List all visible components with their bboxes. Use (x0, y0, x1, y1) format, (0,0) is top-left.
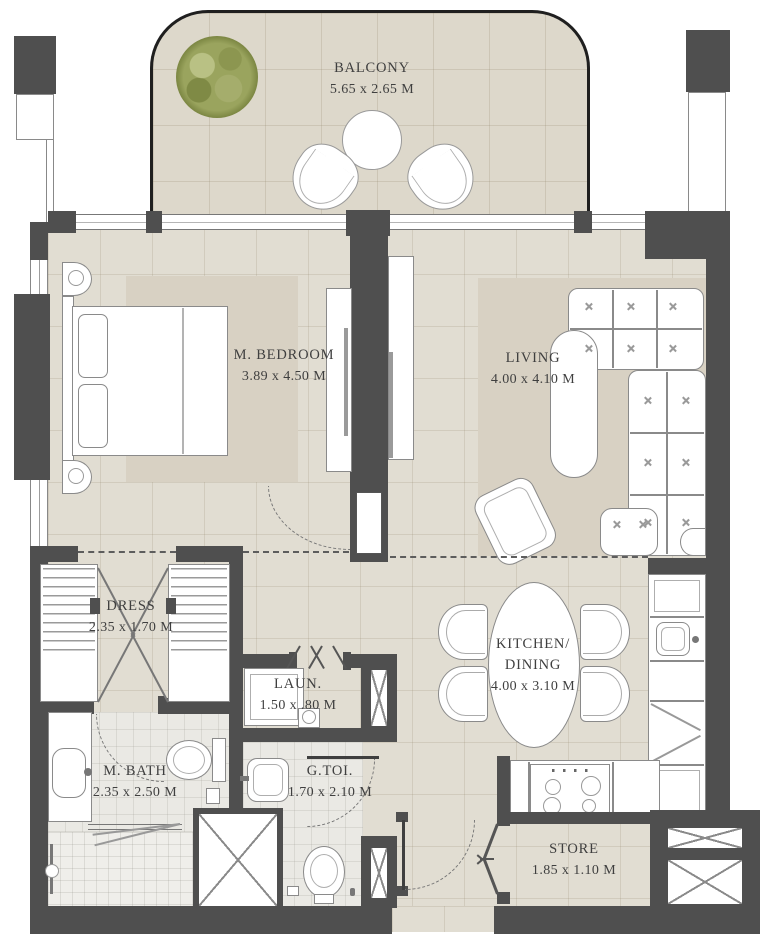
wall-segment (686, 30, 730, 92)
room-label-living: LIVING 4.00 x 4.10 M (433, 348, 633, 390)
burner (545, 779, 561, 795)
door-jamb (497, 892, 510, 904)
room-dims: 3.89 x 4.50 M (184, 366, 384, 387)
wall-segment (645, 211, 730, 259)
room-label-bedroom: M. BEDROOM 3.89 x 4.50 M (184, 345, 384, 387)
wall-segment (497, 756, 510, 818)
window-mullion (48, 211, 76, 233)
sofa-tuft (643, 396, 652, 405)
wall-segment (510, 812, 650, 824)
room-label-kitchen-dining: KITCHEN/ DINING 4.00 x 3.10 M (443, 634, 623, 697)
entry-floor (392, 906, 494, 932)
room-name: LIVING (433, 348, 633, 369)
window-mullion (146, 211, 162, 233)
counter-divider (650, 616, 704, 618)
room-name: M. BATH (45, 761, 225, 782)
wall-segment (494, 906, 760, 934)
wall-segment (30, 222, 48, 260)
side-table (680, 528, 706, 556)
neighbour-wall-lines (46, 140, 54, 222)
room-label-store: STORE 1.85 x 1.10 M (484, 839, 664, 881)
room-name: DINING (443, 655, 623, 676)
neighbour-column (688, 92, 726, 222)
sofa-tuft (612, 520, 621, 529)
wall-segment (14, 36, 56, 94)
bedroom-door-leaf (356, 492, 382, 554)
bedside-lamp (68, 270, 84, 286)
wall-segment (30, 546, 78, 562)
room-dims: 1.50 x .80 M (208, 695, 388, 716)
room-name: STORE (484, 839, 664, 860)
burner (582, 799, 596, 813)
room-label-laundry: LAUN. 1.50 x .80 M (208, 674, 388, 716)
sofa-tuft (626, 302, 635, 311)
pillow (78, 384, 108, 448)
counter-divider (612, 762, 614, 816)
room-name: DRESS (41, 596, 221, 617)
gtoi-toilet-inner (310, 854, 338, 888)
bedside-lamp (68, 468, 84, 484)
neighbour-column (16, 94, 54, 140)
room-dims: 2.35 x 2.50 M (45, 782, 225, 803)
oven (654, 770, 700, 814)
room-name: LAUN. (208, 674, 388, 695)
room-dims: 5.65 x 2.65 M (272, 79, 472, 100)
room-dims: 1.85 x 1.10 M (484, 860, 664, 881)
kitchen-sink-inner (661, 627, 685, 651)
sofa-tuft (681, 396, 690, 405)
pillow (78, 314, 108, 378)
wall-segment (648, 558, 706, 574)
faucet (692, 636, 699, 643)
room-dims: 4.00 x 4.10 M (433, 369, 633, 390)
tree-plant (176, 36, 258, 118)
service-shaft (193, 808, 283, 912)
bedroom-window (30, 260, 48, 294)
counter-divider (650, 660, 704, 662)
room-name: M. BEDROOM (184, 345, 384, 366)
bedroom-window (30, 480, 48, 546)
room-label-dress: DRESS 2.35 x 1.70 M (41, 596, 221, 638)
room-dims: 1.70 x 2.10 M (240, 782, 420, 803)
sofa-tuft (638, 520, 647, 529)
wall-segment (30, 906, 392, 934)
burner (581, 776, 601, 796)
wall-segment (14, 294, 50, 480)
counter-divider (650, 700, 704, 702)
gtoi-toilet-tank (314, 894, 334, 904)
room-name: KITCHEN/ (443, 634, 623, 655)
room-dims: 2.35 x 1.70 M (41, 617, 221, 638)
floor-plan: BALCONY 5.65 x 2.65 M M. BEDROOM 3.89 x … (0, 0, 768, 934)
sofa-tuft (584, 302, 593, 311)
tissue-holder (287, 886, 299, 896)
sofa-seam (666, 372, 668, 554)
sofa-tuft (643, 458, 652, 467)
sofa-tuft (668, 344, 677, 353)
door-jamb (497, 814, 510, 826)
fridge (654, 580, 700, 612)
sofa-tuft (681, 518, 690, 527)
room-dims: 4.00 x 3.10 M (443, 676, 623, 697)
room-name: G.TOI. (240, 761, 420, 782)
shower-head-rose (45, 864, 59, 878)
pouf (600, 508, 658, 556)
sofa-seam (570, 328, 702, 330)
room-label-balcony: BALCONY 5.65 x 2.65 M (272, 58, 472, 100)
wall-segment (243, 654, 291, 668)
sofa-tuft (668, 302, 677, 311)
room-label-master-bath: M. BATH 2.35 x 2.50 M (45, 761, 225, 803)
service-shaft (664, 824, 746, 852)
room-name: BALCONY (272, 58, 472, 79)
sofa-tuft (681, 458, 690, 467)
service-shaft (664, 856, 746, 908)
wall-segment (706, 256, 730, 822)
window-mullion (574, 211, 592, 233)
drain (350, 888, 355, 896)
opening-dashed-line (390, 556, 648, 558)
tv-screen (389, 352, 393, 458)
stove-knobs (552, 769, 592, 772)
wall-segment (176, 546, 232, 562)
opening-dashed-line (78, 551, 176, 553)
room-label-guest-toilet: G.TOI. 1.70 x 2.10 M (240, 761, 420, 803)
opening-dashed-line (243, 551, 349, 553)
service-shaft (367, 844, 391, 902)
